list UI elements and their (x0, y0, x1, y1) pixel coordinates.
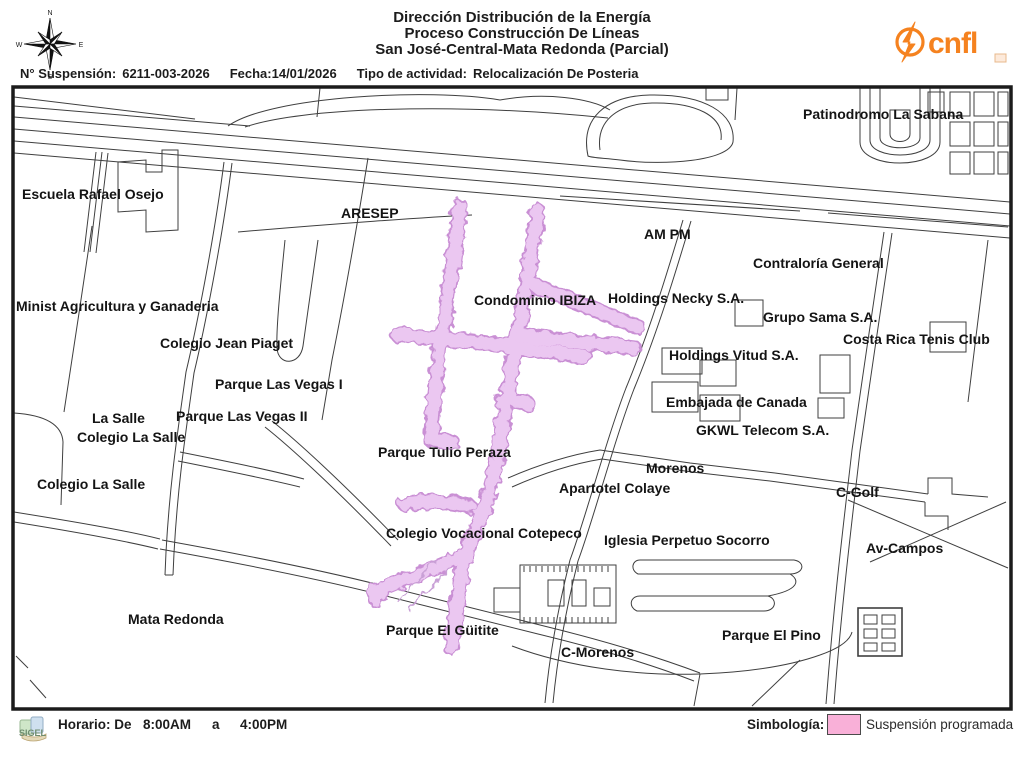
legend-label: Simbología: (747, 717, 824, 732)
legend-suspension-swatch (827, 714, 861, 735)
footer-bar: SIGEL Horario: De 8:00AM a 4:00PM Simbol… (0, 710, 1024, 750)
schedule-connector: a (212, 717, 220, 732)
map-canvas (0, 0, 1024, 767)
schedule-start-time: 8:00AM (143, 717, 191, 732)
schedule-label: Horario: De (58, 717, 132, 732)
schedule-end-time: 4:00PM (240, 717, 287, 732)
sigel-logo: SIGEL (16, 712, 52, 742)
suspension-map-page: N S W E Dirección Distribución de la Ene… (0, 0, 1024, 767)
sigel-logo-text: SIGEL (19, 728, 47, 738)
suspension-zone (374, 206, 638, 648)
legend-suspension-text: Suspensión programada (866, 717, 1013, 732)
